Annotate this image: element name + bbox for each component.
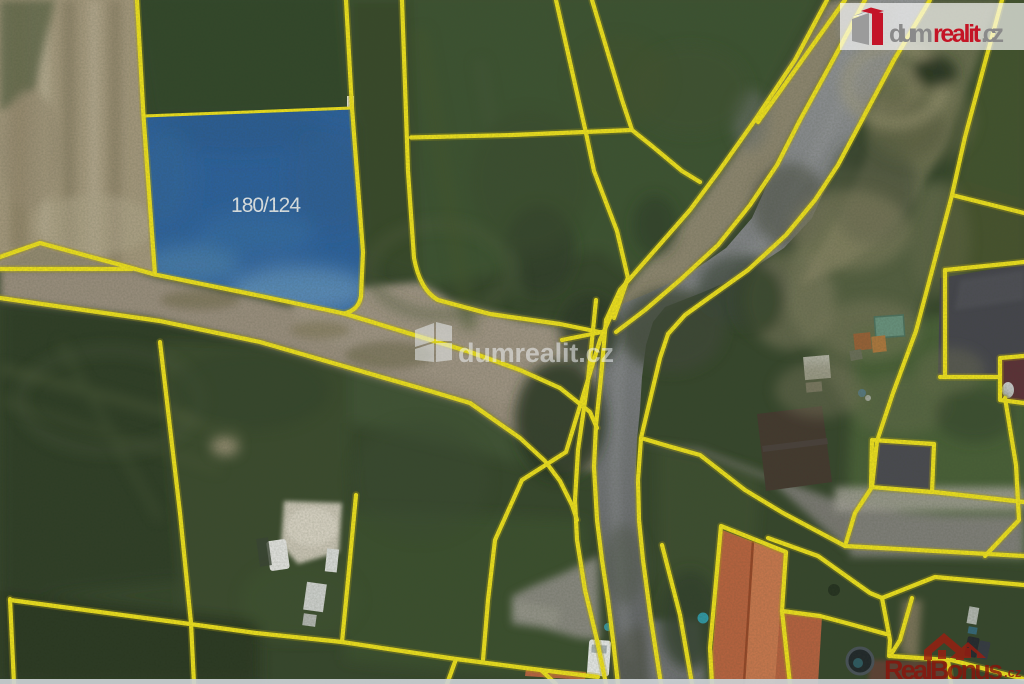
svg-text:realit: realit [933, 20, 982, 48]
svg-text:dum: dum [889, 20, 933, 48]
svg-text:.cz: .cz [981, 20, 1004, 48]
svg-text:dumrealit.cz: dumrealit.cz [458, 338, 614, 368]
svg-text:.cz: .cz [1004, 665, 1022, 680]
